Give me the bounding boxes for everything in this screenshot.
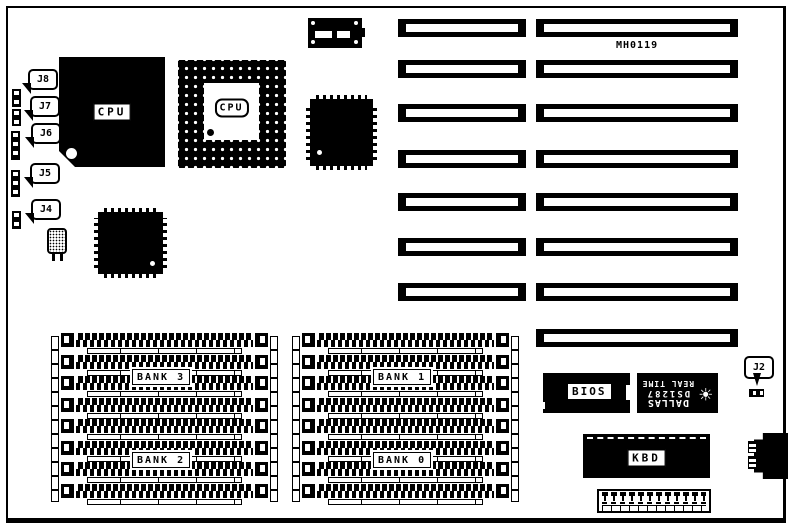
dallas-sun-logo-icon: ☀ (698, 385, 713, 402)
simm-pad-strip (87, 434, 242, 440)
bank2-label: BANK 2 (132, 452, 190, 468)
simm-clip-left (302, 355, 315, 369)
simm-clip-right (255, 419, 268, 433)
simm-clip-right (496, 376, 509, 390)
mount-dot-icon (311, 40, 315, 44)
simm-clip-left (61, 333, 74, 347)
simm-clip-right (496, 333, 509, 347)
simm-socket (61, 484, 268, 505)
simm-clip-left (302, 419, 315, 433)
kbd-controller-chip: KBD (583, 434, 710, 478)
pin1-dot-icon (150, 261, 155, 266)
jumper-block-j5 (11, 170, 20, 197)
simm-clip-right (496, 462, 509, 476)
callout-tail (25, 213, 34, 224)
simm-pad-strip (87, 391, 242, 397)
connector-slot (337, 31, 350, 38)
simm-clip-right (255, 376, 268, 390)
simm-pad-strip (328, 477, 483, 483)
simm-clip-right (496, 441, 509, 455)
connector-key (362, 28, 365, 37)
qfp-pins (163, 218, 167, 268)
simm-pad-strip (328, 499, 483, 505)
simm-pad-strip (328, 391, 483, 397)
simm-clip-left (302, 462, 315, 476)
callout-tail (24, 177, 33, 188)
board-id-silkscreen: MH0119 (616, 40, 658, 51)
motherboard-diagram: CPU CPU J8 J7 J6 J5 J4 (0, 0, 791, 527)
simm-clip-left (302, 484, 315, 498)
header-pin-row-divider (602, 502, 706, 504)
simm-clip-left (302, 441, 315, 455)
simm-contact-strip (317, 355, 494, 369)
isa-slot-16bit (536, 238, 738, 256)
simm-contact-strip (317, 419, 494, 433)
simm-contact-strip (317, 484, 494, 498)
isa-slot-16bit (536, 104, 738, 122)
simm-clip-right (496, 355, 509, 369)
isa-slot-16bit (536, 193, 738, 211)
mount-dot-icon (354, 21, 358, 25)
crystal-leg (60, 254, 63, 261)
jumper-label-text: J4 (40, 204, 52, 215)
callout-tail (24, 110, 33, 121)
bank1-label: BANK 1 (373, 369, 431, 385)
isa-slot-16bit (536, 19, 738, 37)
jumper-label-j6: J6 (31, 123, 61, 144)
pin1-dot-icon (207, 129, 214, 136)
cpu-chip: CPU (59, 57, 165, 167)
kbd-label: KBD (627, 450, 666, 467)
rtc-print: ☀ DALLAS DS1287 REAL TIME (637, 373, 718, 413)
crystal-oscillator (47, 228, 67, 254)
simm-pad-strip (328, 348, 483, 354)
isa-slot-16bit (536, 329, 738, 347)
pin1-dot-icon (317, 150, 322, 155)
isa-slot-16bit (536, 150, 738, 168)
isa-slot-8bit (398, 283, 526, 301)
simm-pad-strip (87, 348, 242, 354)
jumper-label-j8: J8 (28, 69, 58, 90)
jumper-label-text: J5 (39, 168, 51, 179)
cpu-chip-label: CPU (94, 104, 131, 121)
simm-clip-right (496, 484, 509, 498)
socket-dash-line (587, 437, 706, 439)
bios-chip: BIOS (543, 373, 630, 413)
qfp-pins (104, 274, 157, 278)
callout-tail (25, 137, 34, 148)
bios-label: BIOS (567, 383, 612, 400)
rtc-type: REAL TIME (642, 378, 694, 387)
simm-clip-left (302, 398, 315, 412)
crystal-leg (52, 254, 55, 261)
simm-socket (302, 333, 509, 354)
mount-dot-icon (354, 40, 358, 44)
cpu-socket-cavity: CPU (204, 83, 259, 140)
simm-contact-strip (76, 333, 253, 347)
bank-mount-rail (511, 336, 519, 502)
simm-clip-left (61, 462, 74, 476)
simm-clip-right (255, 398, 268, 412)
isa-slot-16bit (536, 283, 738, 301)
simm-contact-strip (317, 333, 494, 347)
simm-clip-right (255, 462, 268, 476)
connector-slot (315, 31, 332, 38)
cpu-socket: CPU (178, 60, 286, 168)
qfp-die (98, 212, 163, 274)
simm-clip-left (61, 419, 74, 433)
simm-bank-middle: BANK 1 BANK 0 (292, 333, 519, 505)
isa-slot-8bit (398, 60, 526, 78)
simm-clip-left (61, 355, 74, 369)
simm-clip-right (496, 398, 509, 412)
simm-clip-left (302, 333, 315, 347)
din-solder-pin (748, 456, 757, 469)
simm-clip-right (255, 441, 268, 455)
rtc-chip: ☀ DALLAS DS1287 REAL TIME (637, 373, 718, 413)
pin1-mark (543, 402, 545, 409)
simm-socket (61, 333, 268, 354)
simm-pad-strip (87, 499, 242, 505)
isa-slot-8bit (398, 193, 526, 211)
mount-dot-icon (311, 21, 315, 25)
isa-slot-8bit (398, 104, 526, 122)
simm-clip-right (255, 333, 268, 347)
jumper-label-j7: J7 (30, 96, 60, 117)
simm-clip-left (61, 441, 74, 455)
qfp-chip-lower (94, 208, 167, 278)
simm-clip-right (255, 484, 268, 498)
jumper-label-j5: J5 (30, 163, 60, 184)
bank-mount-rail (51, 336, 59, 502)
jumper-label-j2: J2 (744, 356, 774, 379)
qfp-pins (373, 105, 377, 160)
simm-clip-left (61, 398, 74, 412)
simm-socket (302, 484, 509, 505)
simm-pad-strip (87, 413, 242, 419)
simm-pad-strip (328, 413, 483, 419)
power-connector (308, 18, 362, 48)
simm-contact-strip (76, 484, 253, 498)
simm-contact-strip (76, 355, 253, 369)
keyboard-din-connector (754, 433, 788, 479)
jumper-block-j8 (12, 89, 21, 107)
rtc-text: DALLAS DS1287 REAL TIME (642, 378, 694, 408)
rtc-part: DS1287 (642, 387, 694, 397)
simm-clip-left (61, 376, 74, 390)
header-pins (602, 492, 706, 501)
qfp-chip-upper (306, 95, 377, 170)
j2-connector (749, 389, 764, 397)
simm-contact-strip (317, 398, 494, 412)
simm-clip-left (61, 484, 74, 498)
callout-tail (753, 373, 761, 386)
simm-socket (302, 398, 509, 419)
simm-clip-right (255, 355, 268, 369)
jumper-label-j4: J4 (31, 199, 61, 220)
simm-clip-left (302, 376, 315, 390)
header-pad-row (602, 505, 706, 513)
isa-slot-8bit (398, 150, 526, 168)
simm-socket (61, 398, 268, 419)
jumper-block-j4 (12, 211, 21, 229)
bank3-label: BANK 3 (132, 369, 190, 385)
isa-slot-8bit (398, 238, 526, 256)
jumper-label-text: J7 (39, 101, 51, 112)
bank0-label: BANK 0 (373, 452, 431, 468)
jumper-label-text: J8 (37, 74, 49, 85)
jumper-label-text: J2 (753, 362, 765, 373)
bank-mount-rail (292, 336, 300, 502)
qfp-die (310, 99, 373, 166)
simm-socket (302, 419, 509, 440)
din-solder-pin (748, 441, 757, 453)
rtc-brand: DALLAS (642, 397, 694, 408)
pin1-dot-icon (66, 148, 77, 159)
simm-socket (61, 419, 268, 440)
jumper-block-j6 (11, 131, 20, 160)
simm-contact-strip (76, 398, 253, 412)
isa-slot-16bit (536, 60, 738, 78)
cpu-socket-label: CPU (214, 99, 248, 118)
jumper-block-j7 (12, 109, 21, 126)
bank-mount-rail (270, 336, 278, 502)
simm-pad-strip (87, 477, 242, 483)
isa-slot-8bit (398, 19, 526, 37)
qfp-pins (316, 166, 367, 170)
simm-clip-right (496, 419, 509, 433)
callout-tail (22, 83, 31, 94)
pin-header-connector (597, 489, 711, 513)
simm-bank-left: BANK 3 BANK 2 (51, 333, 278, 505)
simm-pad-strip (328, 434, 483, 440)
simm-contact-strip (76, 419, 253, 433)
chip-notch (626, 385, 630, 400)
jumper-label-text: J6 (40, 128, 52, 139)
